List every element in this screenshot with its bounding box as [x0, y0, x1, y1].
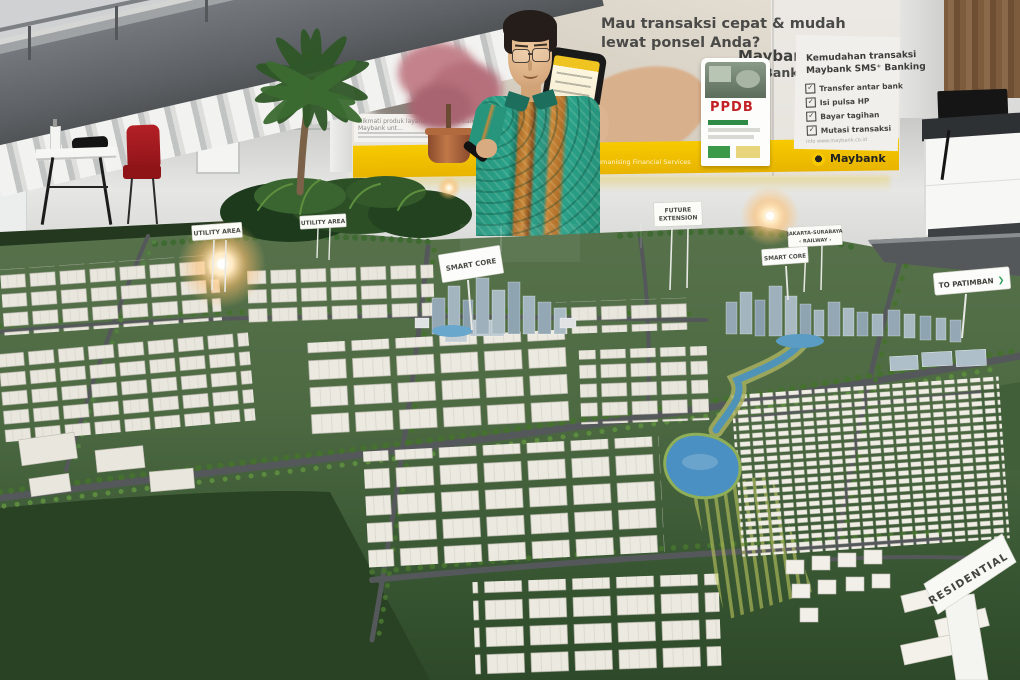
lake-highlight [682, 454, 718, 470]
lamp-glow-right-core [766, 212, 774, 220]
residential-area [731, 376, 1010, 556]
city-scale-model: UTILITY AREA UTILITY AREA FUTURE EXTENSI… [0, 0, 1020, 680]
warehouse-cluster-bottom [472, 573, 721, 680]
sign-label: FUTURE [664, 207, 691, 215]
warehouse-cluster-upper-mid [556, 298, 691, 335]
warehouse-cluster-upper-center [247, 261, 435, 325]
lobby-photo-scene: Maybank Lintas … Nikmati produk layanan … [0, 0, 1020, 680]
sign-label: EXTENSION [659, 214, 698, 222]
arrow-right-icon: ❯ [997, 275, 1004, 285]
palm-plant [252, 27, 372, 192]
lamp-glow-small [437, 176, 461, 200]
warehouse-cluster-center [304, 329, 571, 437]
warehouse-cluster-east [579, 346, 710, 424]
planter-bed [220, 176, 472, 242]
warehouse-cluster-lower-center [363, 436, 665, 567]
